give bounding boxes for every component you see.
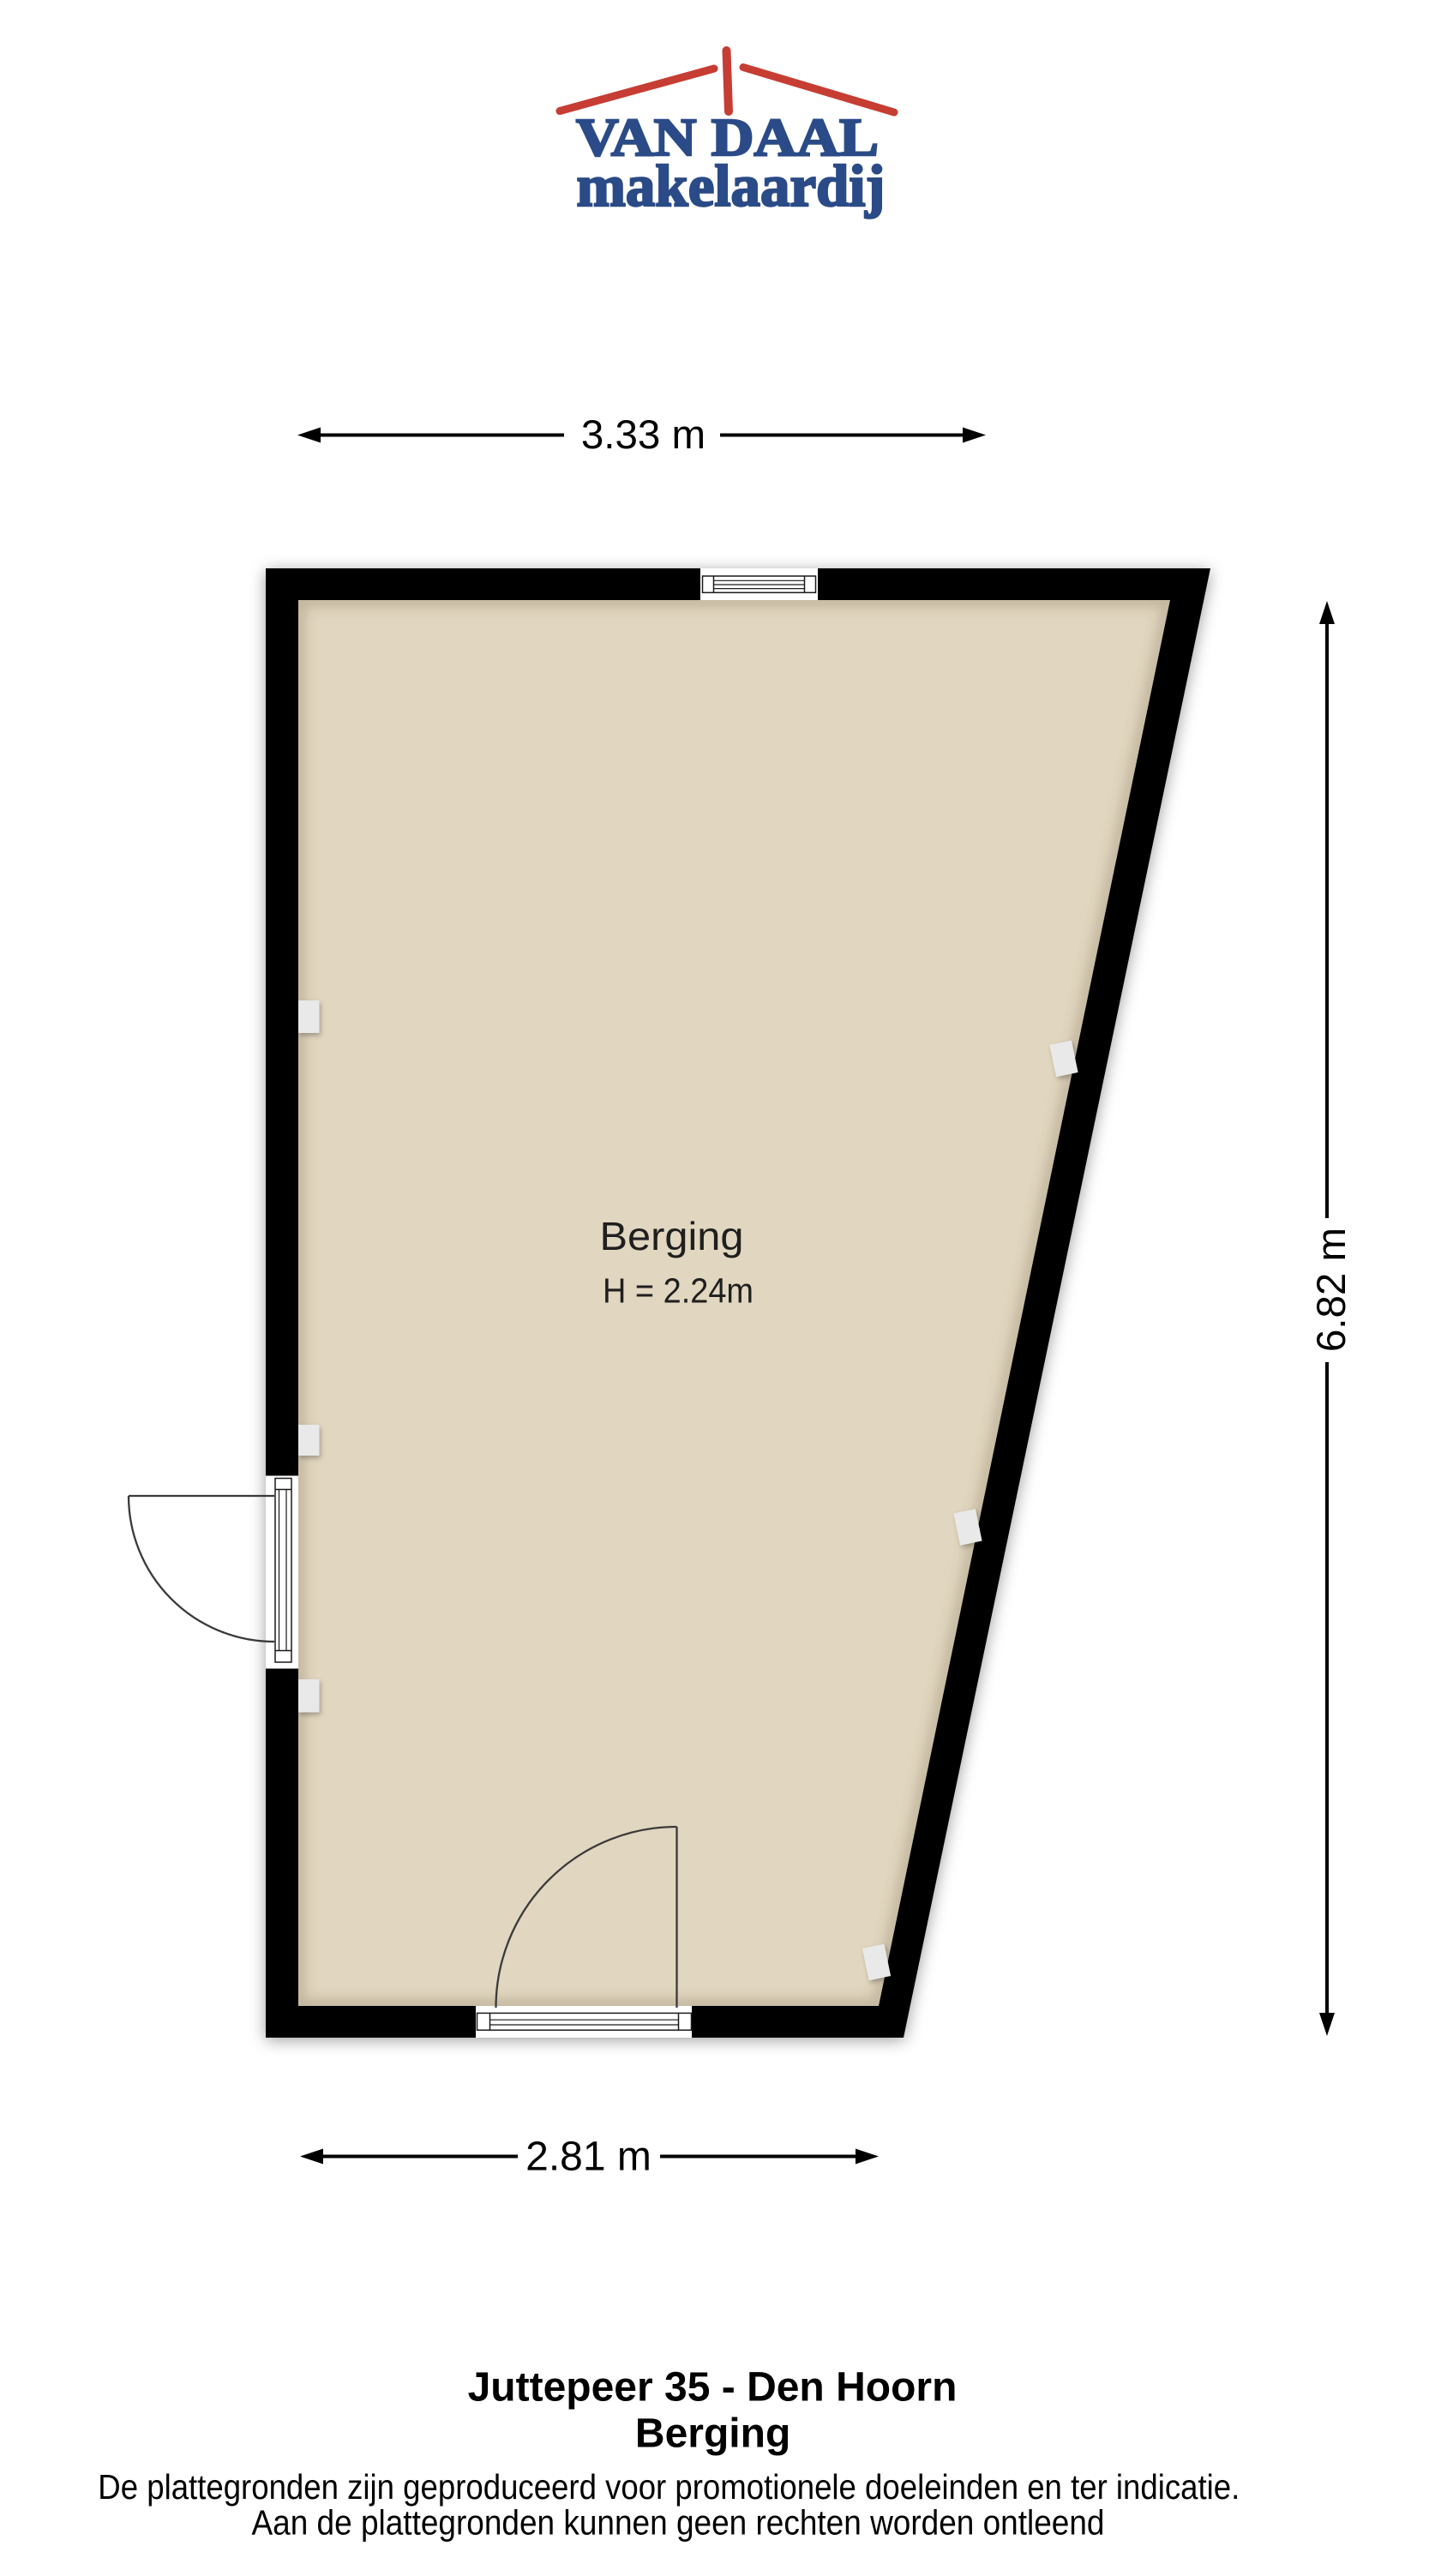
svg-text:Juttepeer 35 - Den Hoorn: Juttepeer 35 - Den Hoorn [468,2365,958,2411]
svg-text:Berging: Berging [635,2411,790,2457]
svg-text:2.81 m: 2.81 m [525,2135,651,2180]
svg-text:3.33 m: 3.33 m [581,412,705,458]
svg-text:Aan de plattegronden kunnen ge: Aan de plattegronden kunnen geen rechten… [252,2503,1105,2543]
svg-text:De plattegronden zijn geproduc: De plattegronden zijn geproduceerd voor … [98,2467,1240,2507]
svg-text:Berging: Berging [600,1214,744,1258]
svg-text:6.82 m: 6.82 m [1309,1228,1354,1352]
svg-text:H = 2.24m: H = 2.24m [603,1271,754,1311]
svg-text:makelaardij: makelaardij [577,153,886,219]
